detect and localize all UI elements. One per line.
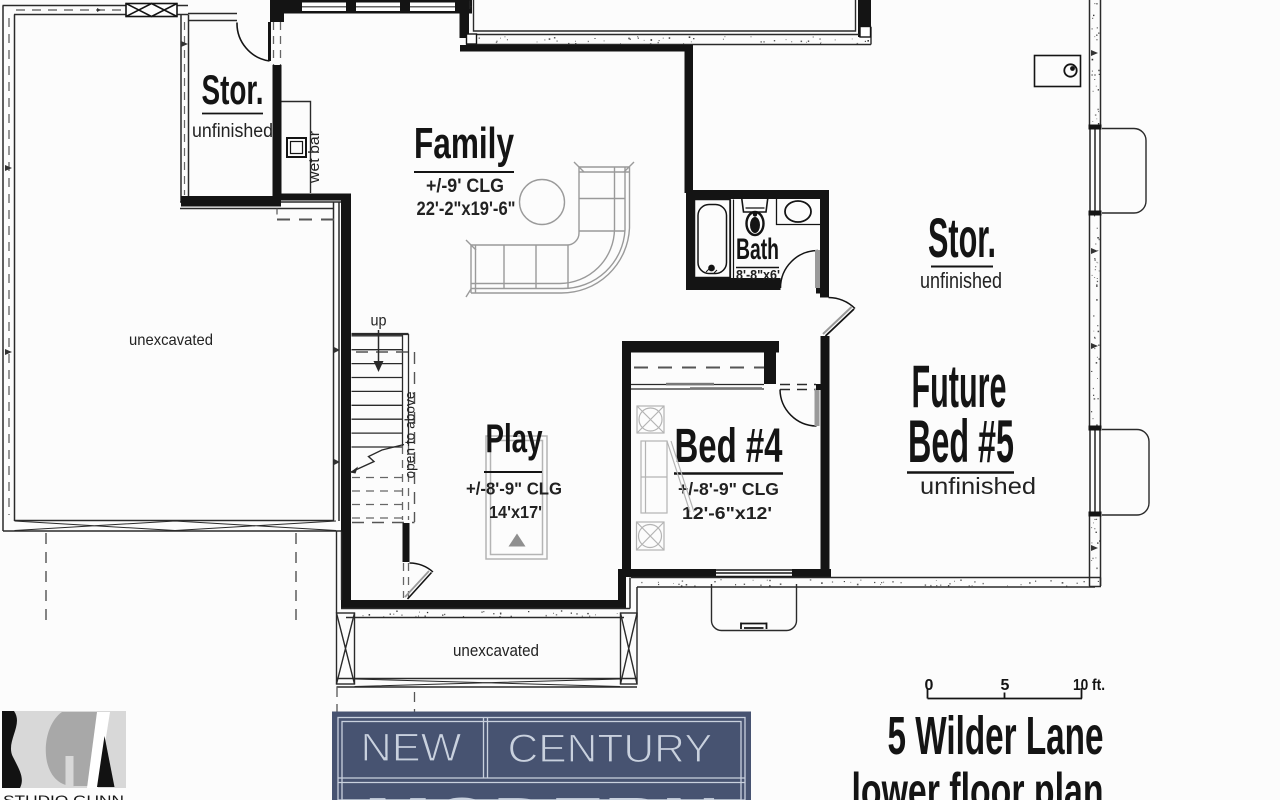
svg-text:Play: Play bbox=[486, 417, 544, 461]
svg-text:5 Wilder Lane: 5 Wilder Lane bbox=[888, 706, 1104, 766]
svg-text:unfinished: unfinished bbox=[192, 121, 273, 142]
svg-text:MODERN: MODERN bbox=[365, 786, 720, 800]
svg-text:unexcavated: unexcavated bbox=[453, 642, 539, 660]
svg-text:8'-8"x6': 8'-8"x6' bbox=[736, 267, 780, 283]
svg-text:unfinished: unfinished bbox=[920, 268, 1002, 293]
svg-text:+/-8'-9" CLG: +/-8'-9" CLG bbox=[678, 479, 779, 499]
svg-text:Family: Family bbox=[414, 119, 514, 168]
svg-text:Bed #5: Bed #5 bbox=[908, 408, 1014, 475]
svg-text:12'-6"x12': 12'-6"x12' bbox=[682, 503, 772, 523]
svg-text:CENTURY: CENTURY bbox=[508, 727, 713, 771]
svg-text:Stor.: Stor. bbox=[928, 206, 996, 269]
svg-text:Stor.: Stor. bbox=[202, 66, 264, 113]
svg-text:Bed #4: Bed #4 bbox=[675, 420, 783, 473]
svg-text:wet bar: wet bar bbox=[307, 131, 323, 184]
svg-text:NEW: NEW bbox=[361, 726, 462, 770]
svg-text:+/-9' CLG: +/-9' CLG bbox=[426, 176, 504, 197]
svg-text:5: 5 bbox=[1001, 677, 1010, 694]
svg-text:STUDIO GUNN: STUDIO GUNN bbox=[3, 792, 124, 800]
svg-text:unexcavated: unexcavated bbox=[129, 332, 213, 349]
svg-text:unfinished: unfinished bbox=[920, 473, 1036, 499]
svg-text:open to above: open to above bbox=[402, 391, 418, 478]
svg-text:Bath: Bath bbox=[736, 233, 779, 266]
svg-text:14'x17': 14'x17' bbox=[489, 502, 542, 522]
svg-text:22'-2"x19'-6": 22'-2"x19'-6" bbox=[417, 199, 516, 220]
svg-text:lower floor plan: lower floor plan bbox=[852, 763, 1104, 800]
svg-text:0: 0 bbox=[925, 677, 934, 694]
svg-text:10 ft.: 10 ft. bbox=[1073, 677, 1105, 694]
svg-text:up: up bbox=[371, 313, 387, 330]
svg-text:+/-8'-9" CLG: +/-8'-9" CLG bbox=[466, 479, 562, 499]
